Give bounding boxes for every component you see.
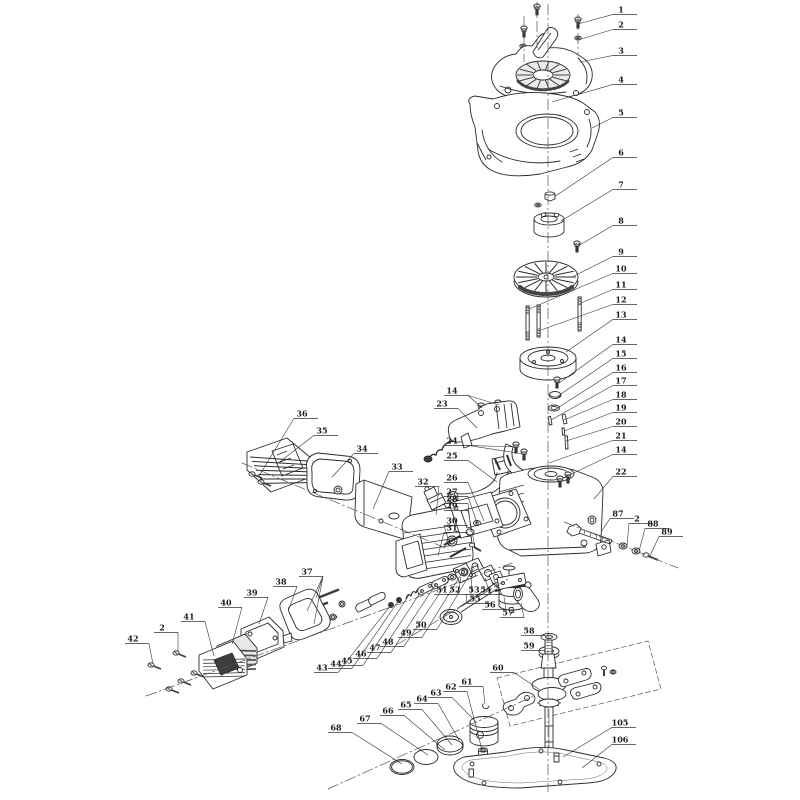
callout-48-label: 48: [382, 637, 394, 647]
callout-3-leader: [580, 55, 613, 62]
callout-8-label: 8: [618, 216, 624, 226]
callout-65-label: 65: [400, 700, 411, 710]
callout-87: 87: [601, 509, 634, 533]
callout-12-leader: [541, 304, 613, 330]
callout-12-label: 12: [615, 295, 626, 305]
callout-21-leader: [549, 440, 613, 463]
callout-14-label: 14: [615, 445, 627, 455]
callout-58: 58: [521, 626, 546, 638]
callout-105-leader: [563, 727, 612, 757]
coil-mount-bolts: [513, 442, 527, 460]
engine-exploded-parts-diagram: 1234567891011121314151617181920211422142…: [0, 0, 800, 800]
callout-51-label: 51: [436, 585, 447, 595]
callout-8-leader: [578, 225, 613, 246]
callout-32-label: 32: [417, 477, 428, 487]
callout-88-label: 88: [647, 519, 659, 529]
callout-31-label: 31: [446, 523, 457, 533]
callout-19-leader: [564, 412, 613, 431]
callout-5-label: 5: [618, 108, 624, 118]
callout-8: 8: [578, 216, 637, 247]
callout-66-label: 66: [382, 706, 394, 716]
callout-40-label: 40: [220, 598, 232, 608]
callout-68-label: 68: [330, 723, 342, 733]
callout-42-leader: [149, 643, 153, 664]
callout-2-label: 2: [159, 623, 165, 633]
callout-9-label: 9: [618, 247, 624, 257]
callout-67-label: 67: [359, 714, 370, 724]
callout-18-label: 18: [615, 390, 627, 400]
callout-13: 13: [566, 310, 637, 353]
thrust-washer: [541, 634, 557, 641]
callout-13-leader: [566, 319, 613, 352]
callout-9-leader: [572, 256, 613, 277]
callout-46: 46: [353, 590, 422, 659]
callout-49-label: 49: [400, 628, 412, 638]
callout-88-leader: [639, 528, 645, 551]
callout-43-label: 43: [316, 663, 328, 673]
callout-59-label: 59: [523, 641, 535, 651]
bolt-8-icon: [574, 241, 580, 252]
callout-38-label: 38: [275, 577, 287, 587]
flange-nut: [535, 192, 555, 207]
callout-11-leader: [581, 289, 613, 303]
intake-boot: [514, 586, 540, 611]
callout-42: 42: [125, 634, 153, 665]
callout-87-label: 87: [612, 509, 623, 519]
callout-21-label: 21: [615, 431, 626, 441]
callout-14-label: 14: [615, 335, 627, 345]
diagram-stage: 1234567891011121314151617181920211422142…: [0, 0, 800, 800]
callout-15-label: 15: [615, 349, 626, 359]
callout-41-label: 41: [183, 612, 194, 622]
callout-4-label: 4: [618, 75, 624, 85]
callout-46-label: 46: [355, 649, 367, 659]
air-cleaner-assembly: [148, 589, 345, 693]
callout-66-leader: [404, 715, 445, 750]
callout-20-leader: [566, 426, 613, 441]
callout-7: 7: [561, 180, 637, 222]
callout-66: 66: [380, 706, 445, 751]
callout-3-label: 3: [618, 46, 624, 56]
callout-52-label: 52: [449, 585, 460, 595]
callout-68-leader: [352, 732, 402, 764]
callout-44-label: 44: [330, 659, 342, 669]
callout-105-label: 105: [612, 718, 629, 728]
starter-cup: [534, 213, 564, 238]
crankshaft-assembly: [497, 640, 661, 757]
callout-22-label: 22: [615, 467, 626, 477]
callout-10-label: 10: [615, 264, 627, 274]
callout-25-label: 25: [446, 451, 457, 461]
cover-screw-icon: [148, 663, 161, 669]
callout-2-label: 2: [618, 20, 624, 30]
callout-67-leader: [381, 723, 428, 755]
callout-41: 41: [181, 612, 214, 657]
callout-60-label: 60: [492, 663, 504, 673]
callout-47-label: 47: [369, 643, 380, 653]
callout-2-leader: [627, 523, 629, 546]
callout-37-label: 37: [301, 567, 312, 577]
callout-9: 9: [572, 247, 637, 278]
rotor-hardware: [548, 377, 568, 449]
callout-45-label: 45: [341, 656, 352, 666]
callout-35-label: 35: [316, 426, 327, 436]
callout-2: 2: [154, 623, 178, 653]
callout-26-label: 26: [446, 473, 458, 483]
callout-14-label: 14: [446, 386, 458, 396]
callout-89-leader: [650, 536, 659, 556]
callout-20-label: 20: [615, 417, 627, 427]
callout-64-leader: [438, 703, 459, 740]
callout-45: 45: [339, 595, 409, 666]
callout-61-label: 61: [461, 677, 472, 687]
callout-54-label: 54: [480, 585, 492, 595]
callout-89: 89: [650, 527, 683, 557]
callout-11: 11: [581, 280, 637, 304]
flywheel-fan: [514, 261, 578, 297]
callout-1-label: 1: [618, 5, 624, 15]
callout-2: 2: [578, 20, 637, 41]
callout-13-label: 13: [615, 310, 627, 320]
callout-29-label: 29: [446, 501, 458, 511]
callout-68: 68: [328, 723, 402, 765]
callout-1-leader: [578, 14, 613, 24]
callout-50-label: 50: [415, 620, 427, 630]
callout-64-label: 64: [416, 694, 428, 704]
callout-47-leader: [391, 584, 436, 652]
callout-24-label: 24: [446, 436, 458, 446]
callout-63: 63: [428, 688, 476, 723]
callout-18-leader: [564, 399, 613, 420]
callout-56-label: 56: [484, 600, 496, 610]
callout-61-leader: [483, 686, 485, 704]
callout-17-label: 17: [615, 376, 626, 386]
callout-58-label: 58: [523, 626, 535, 636]
callout-57-label: 57: [502, 608, 513, 618]
callout-2-label: 2: [634, 514, 640, 524]
stud-bolt-icon: [578, 297, 581, 331]
callout-11-label: 11: [615, 280, 626, 290]
callout-19-label: 19: [615, 403, 627, 413]
callout-42-label: 42: [127, 634, 138, 644]
callout-65: 65: [398, 700, 452, 746]
callout-3: 3: [580, 46, 637, 63]
callout-34-label: 34: [356, 444, 368, 454]
callout-89-label: 89: [661, 527, 673, 537]
callout-62-label: 62: [445, 682, 456, 692]
callout-17-leader: [551, 385, 613, 420]
callout-55-label: 55: [469, 594, 480, 604]
callout-61: 61: [459, 677, 485, 705]
stud-bolt-icon: [526, 306, 529, 340]
callout-63-label: 63: [430, 688, 442, 698]
callout-2-leader: [578, 29, 613, 40]
bolt-24-icon: [513, 442, 519, 453]
callout-87-leader: [601, 518, 610, 532]
callout-7-leader: [561, 189, 613, 221]
callout-7-label: 7: [618, 180, 624, 190]
cover-screw-icon: [173, 651, 186, 657]
blower-housing: [469, 93, 600, 176]
stud-bolt-icon: [537, 305, 540, 337]
callout-63-leader: [452, 697, 476, 722]
callout-106-label: 106: [612, 735, 629, 745]
callout-36-label: 36: [296, 409, 308, 419]
small-washer-icon: [535, 203, 541, 207]
callout-1: 1: [578, 5, 637, 25]
callout-62: 62: [443, 682, 482, 751]
bolt-24-icon: [521, 449, 527, 460]
callout-16-label: 16: [615, 363, 627, 373]
callout-14-leader: [563, 454, 613, 478]
air-cleaner-axis-centerline: [146, 563, 512, 696]
callout-39-label: 39: [246, 588, 258, 598]
muffler-cover: [247, 438, 311, 492]
callout-33-label: 33: [391, 462, 403, 472]
callout-6-label: 6: [618, 148, 624, 158]
callout-23-label: 23: [436, 399, 448, 409]
